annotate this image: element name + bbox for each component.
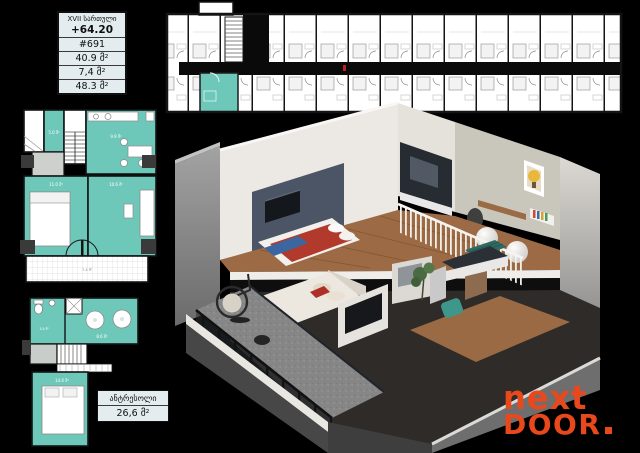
- mezzanine-stairs: [30, 344, 87, 364]
- mezzanine-title: ანტრესოლი: [98, 391, 168, 405]
- unit-number: #691: [59, 37, 125, 51]
- unit-info-box: XVII სართული +64.20 #691 40.9 მ² 7,4 მ² …: [57, 11, 127, 95]
- area-internal: 40.9 მ²: [59, 51, 125, 65]
- staircase: [225, 17, 243, 62]
- building-floor-plan: [165, 1, 623, 114]
- entry-landing: [32, 152, 64, 176]
- outer-left-wall: [175, 142, 220, 326]
- area-total: 48.3 მ²: [59, 79, 125, 93]
- elevator-core: [243, 14, 269, 62]
- logo-dot-icon: [605, 427, 612, 434]
- svg-text:3.4 მ²: 3.4 მ²: [39, 327, 49, 331]
- main-plan-drawing: 5.0 მ² 9.9 მ² 11.0 მ² 10.6 მ² 7.4 მ²: [20, 110, 156, 282]
- mezzanine-floor-plan: 3.4 მ² 8.6 მ² 14.6 მ²: [22, 288, 187, 453]
- logo-word-next: next: [503, 384, 628, 413]
- floor-label: XVII სართული: [59, 15, 125, 24]
- brand-logo: next DOOR: [503, 384, 628, 438]
- svg-text:8.6 მ²: 8.6 მ²: [96, 334, 108, 339]
- mezzanine-info-box: ანტრესოლი 26,6 მ²: [97, 390, 169, 422]
- building-plan-drawing: [167, 2, 621, 112]
- balcony-table: [254, 335, 270, 345]
- upper-bathroom: [398, 103, 455, 216]
- mezzanine-bedroom: [32, 372, 88, 446]
- floor-row: XVII სართული +64.20: [59, 13, 125, 37]
- stairs: [64, 110, 86, 164]
- mezzanine-plan-drawing: 3.4 მ² 8.6 მ² 14.6 მ²: [22, 298, 138, 446]
- main-floor-plan: 5.0 მ² 9.9 მ² 11.0 მ² 10.6 მ² 7.4 მ²: [8, 106, 160, 292]
- mezzanine-area: 26,6 მ²: [98, 405, 168, 421]
- balcony-area-label: 7.4 მ²: [82, 268, 93, 272]
- elevation-label: +64.20: [59, 24, 125, 36]
- structural-column: [22, 340, 31, 355]
- presentation-canvas: XVII სართული +64.20 #691 40.9 მ² 7,4 მ² …: [0, 0, 640, 453]
- svg-text:11.0 მ²: 11.0 მ²: [49, 182, 63, 187]
- svg-text:5.0 მ²: 5.0 მ²: [48, 130, 60, 135]
- plan-marker: [343, 65, 346, 71]
- mezzanine-edge-hatch: [57, 364, 112, 372]
- corridor: [179, 62, 621, 75]
- svg-text:10.6 მ²: 10.6 მ²: [109, 182, 123, 187]
- svg-text:9.9 მ²: 9.9 მ²: [110, 134, 122, 139]
- svg-text:14.6 მ²: 14.6 მ²: [55, 378, 69, 383]
- area-balcony: 7,4 მ²: [59, 65, 125, 79]
